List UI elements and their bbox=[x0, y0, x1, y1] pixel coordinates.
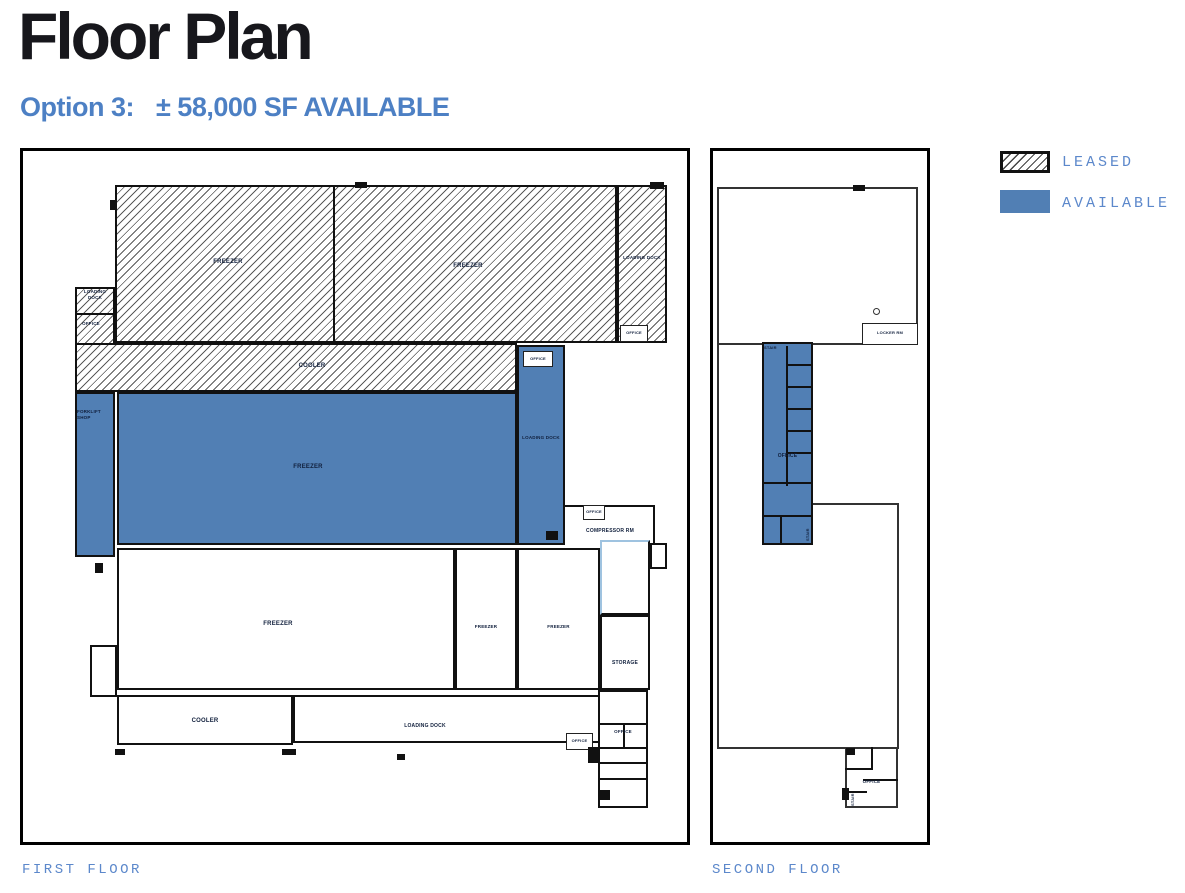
subtitle-availability: ± 58,000 SF AVAILABLE bbox=[156, 92, 449, 122]
wall-line bbox=[845, 768, 873, 770]
room-label: FREEZER bbox=[168, 259, 288, 267]
wall-line bbox=[598, 747, 648, 749]
room-label: FREEZER bbox=[517, 624, 600, 630]
leased-label: LEASED bbox=[1062, 154, 1134, 171]
stair-block bbox=[588, 747, 598, 763]
wall-line bbox=[565, 505, 655, 507]
room-label: COMPRESSOR RM bbox=[566, 528, 654, 534]
room-label: FREEZER bbox=[455, 624, 517, 630]
available-label: AVAILABLE bbox=[1062, 195, 1170, 212]
leased-swatch bbox=[1000, 151, 1050, 173]
room-label: COOLER bbox=[145, 718, 265, 726]
wall-line bbox=[623, 723, 625, 747]
column-symbol bbox=[873, 308, 880, 315]
wall-line bbox=[788, 430, 813, 432]
wall-line bbox=[780, 515, 782, 543]
wall-line bbox=[788, 386, 813, 388]
room-freezer-south-3 bbox=[517, 548, 600, 690]
second-floor-upper-hall bbox=[717, 187, 918, 345]
room-label: LOADING DOCK bbox=[617, 255, 667, 261]
room-label: LOADING DOCK bbox=[77, 289, 113, 300]
wall-line bbox=[333, 187, 335, 341]
door-stub bbox=[110, 200, 116, 210]
wall-line bbox=[717, 747, 848, 749]
stair-block bbox=[846, 748, 855, 755]
room-label: OFFICE bbox=[583, 509, 605, 514]
door-stub bbox=[546, 531, 558, 540]
room-storage-upper bbox=[600, 540, 650, 615]
room-label: OFFICE bbox=[75, 321, 107, 327]
wall-line bbox=[598, 778, 648, 780]
floor-plan-page: Floor Plan Option 3:± 58,000 SF AVAILABL… bbox=[0, 0, 1185, 893]
door-stub bbox=[355, 182, 367, 188]
wall-line bbox=[717, 345, 719, 747]
room-label: LOADING DOCK bbox=[365, 723, 485, 729]
available-swatch bbox=[1000, 190, 1050, 213]
room-label: STAIR bbox=[764, 345, 792, 350]
first-floor-plan: FREEZER FREEZER LOADING DOCK LOADING DOC… bbox=[20, 148, 690, 845]
wall-line bbox=[75, 313, 115, 315]
door-stub bbox=[115, 749, 125, 755]
room-label: LOCKER RM bbox=[862, 330, 918, 335]
room-label: FREEZER bbox=[408, 263, 528, 271]
wall-line bbox=[788, 408, 813, 410]
wall-line bbox=[788, 364, 813, 366]
room-label: OFFICE bbox=[762, 453, 813, 459]
room-label: STAIR bbox=[850, 793, 855, 806]
wall-line bbox=[653, 505, 655, 548]
room-loading-dock-available bbox=[517, 345, 565, 545]
door-stub bbox=[650, 182, 664, 189]
second-floor-plan: LOCKER RM STAIR OFFICE STAIR OFFICE STAI… bbox=[710, 148, 930, 845]
wall-line bbox=[871, 747, 873, 768]
room-loading-dock-south bbox=[293, 695, 600, 743]
room-bump bbox=[650, 543, 667, 569]
room-freezer-south-2 bbox=[455, 548, 517, 690]
room-label: OFFICE bbox=[598, 729, 648, 735]
door-stub bbox=[95, 563, 103, 573]
first-floor-caption: FIRST FLOOR bbox=[22, 862, 142, 878]
room-label: STAIR bbox=[805, 528, 810, 541]
wall-line bbox=[897, 503, 899, 749]
subtitle-option: Option 3: bbox=[20, 92, 134, 122]
door-stub bbox=[397, 754, 405, 760]
wall-line bbox=[764, 482, 811, 484]
room-label: OFFICE bbox=[523, 356, 553, 361]
room-label: COOLER bbox=[252, 363, 372, 371]
room-storage bbox=[600, 615, 650, 690]
room-label: OFFICE bbox=[620, 330, 648, 335]
page-subtitle: Option 3:± 58,000 SF AVAILABLE bbox=[20, 92, 449, 123]
door-stub bbox=[282, 749, 296, 755]
room-notch bbox=[90, 645, 117, 697]
wall-line bbox=[598, 762, 648, 764]
room-freezer-south bbox=[117, 548, 455, 690]
room-label: FREEZER bbox=[218, 621, 338, 629]
wall-line bbox=[813, 503, 899, 505]
wall-line bbox=[764, 515, 811, 517]
room-label: FORKLIFT SHOP bbox=[77, 409, 113, 420]
stair-block bbox=[600, 790, 610, 800]
page-title: Floor Plan bbox=[18, 2, 311, 71]
second-floor-caption: SECOND FLOOR bbox=[712, 862, 843, 878]
room-label: OFFICE bbox=[566, 738, 593, 743]
room-label: FREEZER bbox=[248, 464, 368, 472]
room-loading-dock-east bbox=[617, 185, 667, 343]
room-label: LOADING DOCK bbox=[517, 435, 565, 441]
wall-line bbox=[786, 346, 788, 486]
room-label: OFFICE bbox=[845, 779, 898, 785]
door-stub bbox=[853, 185, 865, 191]
stair-block bbox=[842, 788, 849, 800]
room-label: STORAGE bbox=[600, 660, 650, 666]
